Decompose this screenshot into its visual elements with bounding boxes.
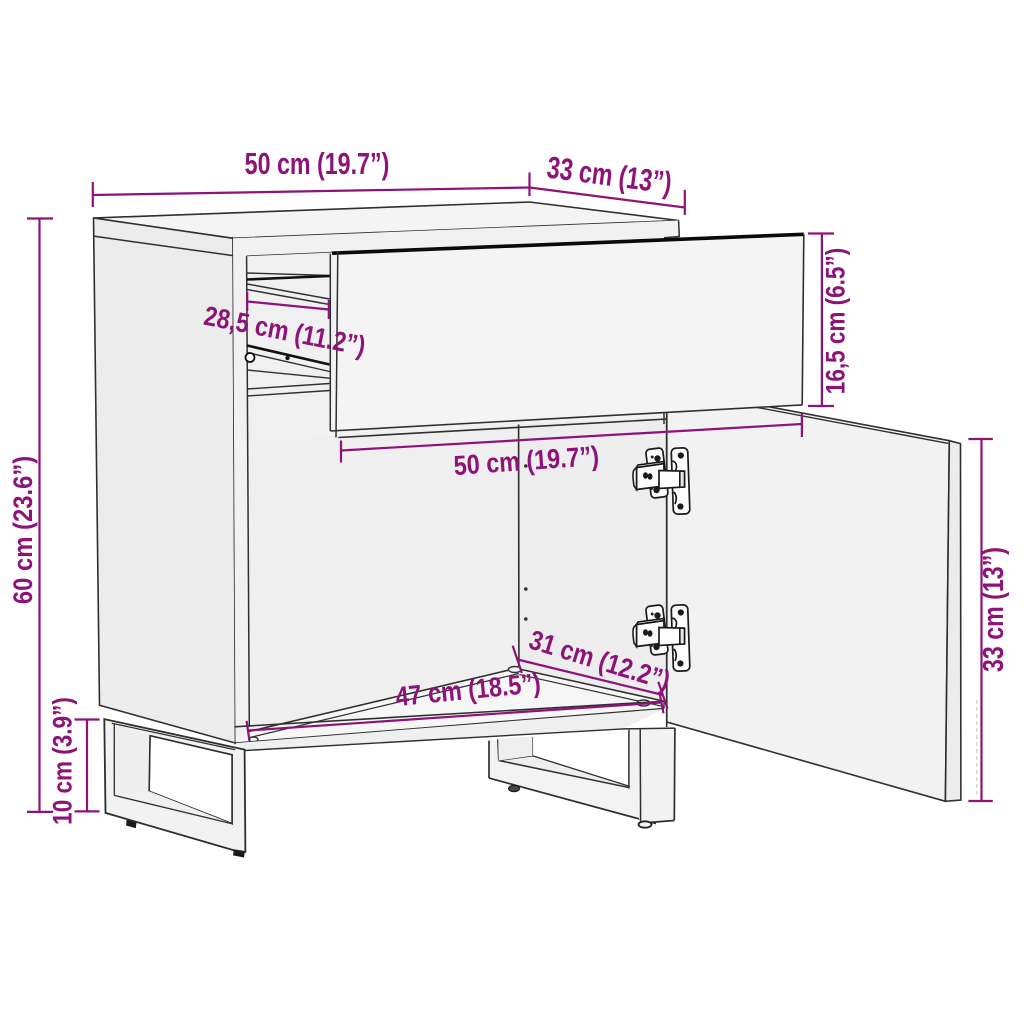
svg-text:10 cm (3.9”): 10 cm (3.9”) xyxy=(49,697,78,825)
svg-text:50 cm (19.7”): 50 cm (19.7”) xyxy=(245,146,390,181)
svg-text:16,5 cm (6.5”): 16,5 cm (6.5”) xyxy=(822,248,851,394)
svg-text:33 cm (13”): 33 cm (13”) xyxy=(976,547,1009,672)
svg-text:60 cm (23.6”): 60 cm (23.6”) xyxy=(9,456,38,604)
